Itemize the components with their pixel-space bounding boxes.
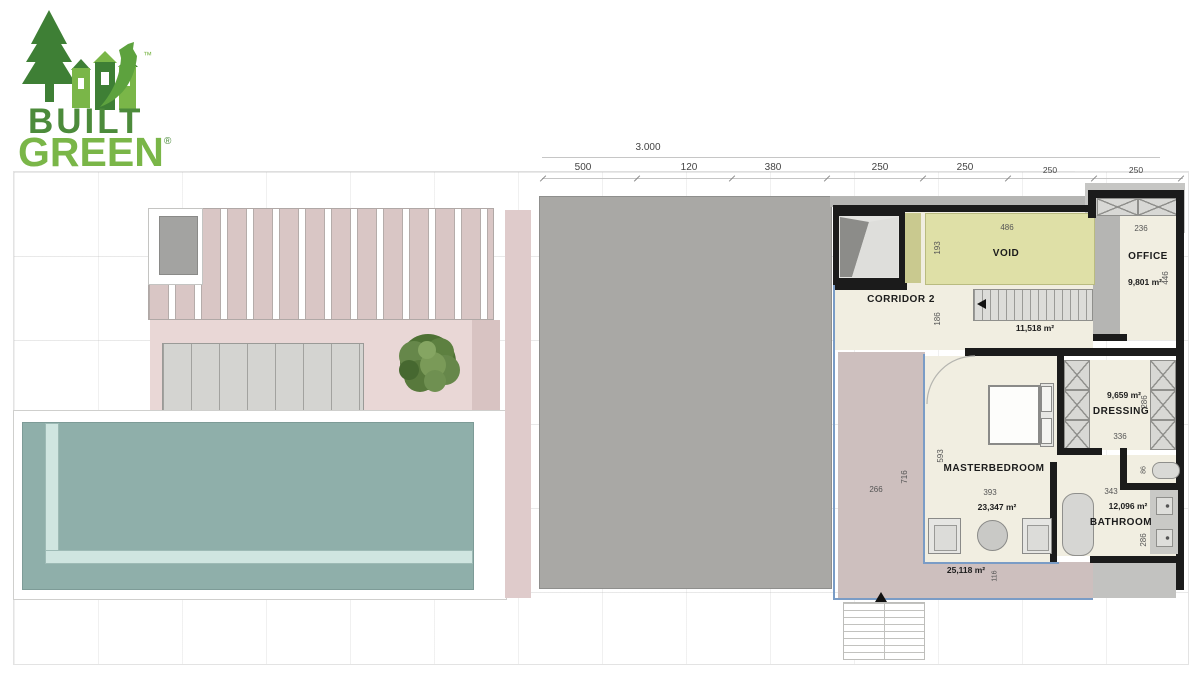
dim-tick-250d: 250 — [1129, 166, 1143, 175]
armchair — [1022, 518, 1052, 554]
pillow — [1041, 418, 1052, 444]
wardrobe-cell — [1064, 360, 1090, 390]
wall-segment — [833, 205, 1093, 212]
room-label-masterbedroom: MASTERBEDROOM — [944, 464, 1045, 474]
dim-office-width: 236 — [1134, 225, 1147, 233]
wall-segment — [1093, 334, 1127, 341]
armchair-cushion — [1027, 525, 1049, 551]
outline-blue — [833, 598, 1093, 600]
room-label-corridor2: CORRIDOR 2 — [867, 295, 935, 305]
armchair-cushion — [934, 525, 957, 551]
dim-terrace-height: 716 — [901, 470, 909, 483]
tree-plan-icon — [390, 328, 468, 400]
dimension-line-ticks — [542, 178, 1183, 179]
dim-dressing-height: 286 — [1141, 395, 1149, 408]
room-label-void: VOID — [993, 249, 1019, 259]
dimension-line-faint — [190, 171, 1075, 172]
area-dressing: 9,659 m² — [1107, 391, 1141, 400]
dim-void-height: 193 — [934, 241, 942, 254]
closet-cell — [1097, 198, 1138, 216]
dim-bathroom-width: 343 — [1104, 488, 1117, 496]
dim-terrace-strip: 116 — [992, 570, 999, 581]
wall-segment — [833, 283, 907, 290]
stair-up-arrow — [875, 592, 887, 602]
dim-tick-380: 380 — [765, 163, 782, 173]
sink — [1156, 529, 1173, 547]
bed — [988, 385, 1040, 445]
area-masterbedroom: 23,347 m² — [978, 503, 1017, 512]
armchair — [928, 518, 961, 554]
door-swing-arc — [920, 350, 980, 410]
area-terrace: 25,118 m² — [947, 566, 985, 575]
dim-tick-250b: 250 — [957, 163, 974, 173]
wall-segment — [1088, 190, 1183, 198]
dim-dressing-width: 336 — [1113, 433, 1126, 441]
elevator-cab-icon — [839, 216, 899, 278]
toilet — [1152, 462, 1180, 479]
stair-center-line — [884, 603, 885, 659]
built-green-logo: ™ BUILT GREEN ® — [16, 6, 176, 172]
pool — [22, 422, 474, 590]
wardrobe-cell — [1150, 420, 1176, 450]
pool-ledge-vertical — [45, 423, 59, 564]
exterior-stairs — [843, 602, 925, 660]
wardrobe-cell — [1064, 420, 1090, 450]
dimension-line-overall — [542, 157, 1160, 158]
round-table — [977, 520, 1008, 551]
dim-tick-250a: 250 — [872, 163, 889, 173]
area-office: 9,801 m² — [1128, 278, 1162, 287]
dim-masterbedroom-height: 593 — [937, 449, 945, 462]
wardrobe-cell — [1064, 390, 1090, 420]
area-corridor2: 11,518 m² — [1016, 324, 1054, 333]
sink — [1156, 497, 1173, 515]
logo-word-green: GREEN — [18, 129, 164, 172]
wall-segment — [1088, 190, 1096, 218]
shaft — [1093, 215, 1120, 340]
skylight — [159, 216, 198, 275]
dim-tick-500: 500 — [575, 163, 592, 173]
outline-blue — [833, 285, 835, 600]
area-bathroom: 12,096 m² — [1109, 502, 1148, 511]
bedroom-terrace — [838, 352, 925, 600]
void-edge — [905, 213, 921, 283]
side-terrace-strip — [505, 210, 531, 598]
logo-registered: ® — [164, 136, 172, 147]
wall-segment — [1127, 483, 1183, 490]
dim-corridor2-height: 186 — [934, 312, 942, 325]
stairs-direction-arrow — [977, 299, 986, 309]
pool-ledge-horizontal — [45, 550, 473, 564]
bottom-right-deck — [1093, 563, 1176, 598]
dim-void-width: 486 — [1000, 224, 1013, 232]
dim-tick-120: 120 — [681, 163, 698, 173]
dim-overall: 3.000 — [635, 143, 660, 153]
staircase — [973, 289, 1093, 321]
floorplan-sheet: ™ BUILT GREEN ® 3.000 500 120 380 250 25… — [0, 0, 1200, 688]
logo-tree-icon — [22, 10, 76, 102]
pillow — [1041, 386, 1052, 412]
dim-masterbedroom-width: 393 — [983, 489, 996, 497]
logo-trademark: ™ — [143, 50, 152, 60]
elevator — [833, 210, 905, 284]
wardrobe-cell — [1150, 360, 1176, 390]
dim-office-height: 446 — [1162, 271, 1170, 284]
dim-tick-250c: 250 — [1043, 166, 1057, 175]
room-label-bathroom: BATHROOM — [1090, 518, 1152, 528]
wardrobe-cell — [1150, 390, 1176, 420]
dim-terrace-width: 266 — [869, 486, 882, 494]
dim-bathroom-height: 286 — [1140, 533, 1148, 546]
main-roof — [539, 196, 832, 589]
wall-segment — [1090, 556, 1183, 563]
wall-segment — [1057, 448, 1102, 455]
room-label-office: OFFICE — [1128, 252, 1168, 262]
closet-cell — [1138, 198, 1179, 216]
dim-wc-height: 86 — [1141, 466, 1148, 474]
wall-segment — [1120, 448, 1127, 490]
